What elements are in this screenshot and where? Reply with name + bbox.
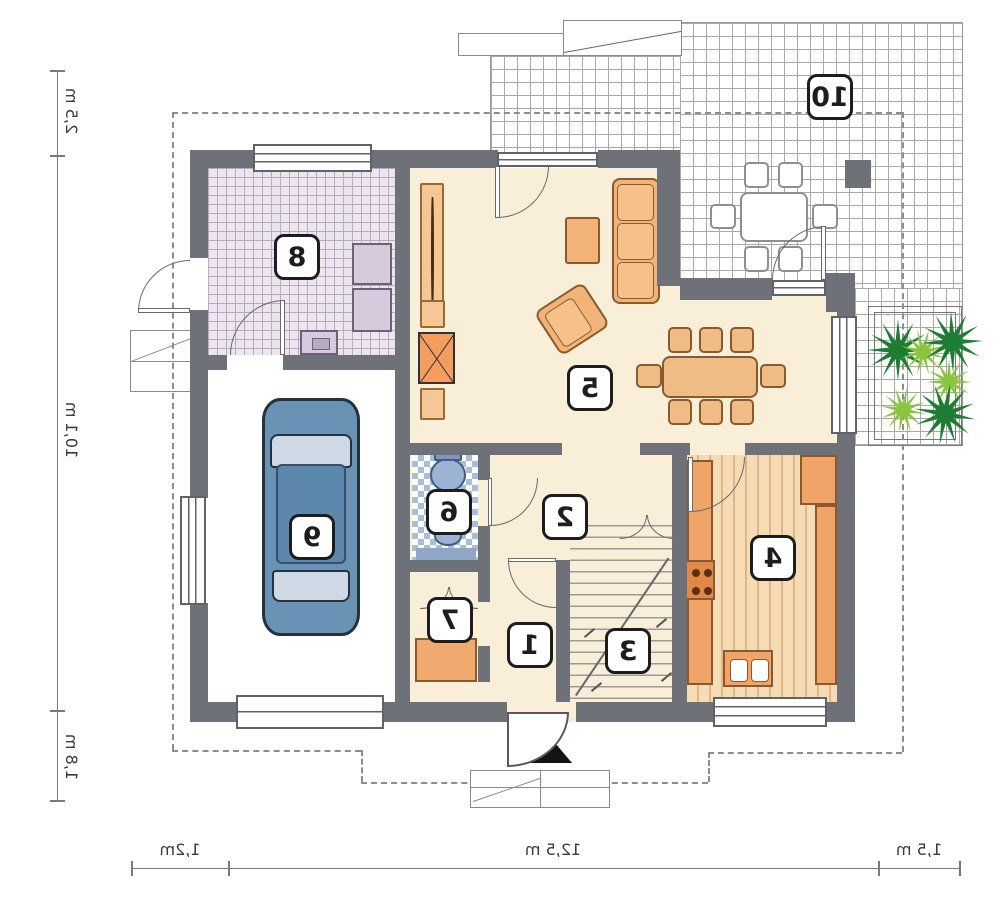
dining-chair	[730, 327, 754, 353]
car-windshield	[270, 434, 352, 468]
terrace-door	[772, 280, 826, 296]
roof-outline-dashed	[172, 750, 361, 752]
room-label: 1	[507, 622, 553, 668]
dimension-tick	[131, 861, 133, 876]
utility-sink-basin	[312, 338, 330, 350]
step-divider	[131, 361, 191, 362]
sofa	[612, 178, 660, 304]
outdoor-chair	[744, 162, 769, 188]
dining-chair	[730, 399, 754, 425]
wall-segment	[283, 355, 410, 370]
dining-chair	[668, 399, 692, 425]
sofa-cushion	[617, 184, 654, 221]
washing-machine	[352, 243, 392, 285]
dimension-tick	[228, 861, 230, 876]
wardrobe-block	[415, 638, 477, 682]
garage-window	[180, 496, 206, 605]
side-steps	[130, 330, 192, 392]
kitchen-counter-right	[815, 505, 837, 685]
door-leaf	[138, 308, 190, 313]
cabinet-decor	[431, 197, 434, 305]
wall-segment	[672, 455, 687, 702]
wall-segment	[395, 168, 410, 368]
dining-chair	[636, 364, 662, 388]
toilet	[430, 458, 466, 492]
stove-hob	[685, 560, 715, 600]
wall-segment	[576, 702, 715, 722]
wall-segment	[556, 560, 570, 702]
wall-segment	[410, 560, 490, 572]
side-cabinet	[420, 300, 445, 328]
room-label: 2	[542, 494, 588, 540]
utility-sink	[300, 330, 338, 355]
sofa-cushion	[617, 262, 654, 299]
car-rear-window	[272, 570, 350, 602]
step-diagonal	[131, 337, 193, 362]
window	[253, 144, 372, 172]
door-leaf	[488, 478, 492, 526]
sink-basin	[730, 659, 748, 682]
room-label: 3	[605, 628, 651, 674]
room-label: 10	[807, 74, 853, 120]
dryer	[352, 288, 392, 332]
coffee-table	[565, 217, 600, 264]
dimension-label: 12,5 m	[518, 840, 588, 859]
dining-chair	[668, 327, 692, 353]
dimension-tick	[50, 710, 65, 712]
door-leaf	[821, 226, 826, 280]
dimension-label: 1,8 m	[63, 729, 81, 785]
wall-segment	[826, 273, 855, 312]
garage-door	[236, 695, 384, 729]
fireplace	[418, 332, 455, 384]
terrace-tiles-strip	[490, 55, 681, 153]
wall-segment	[837, 432, 855, 722]
dimension-tick	[959, 861, 961, 876]
dining-chair	[760, 364, 786, 388]
terrace-pillar	[845, 160, 871, 188]
room-label: 8	[274, 234, 320, 280]
door-leaf	[280, 300, 285, 355]
dining-table	[662, 356, 758, 398]
sink-basin	[751, 659, 769, 682]
step-diagonal	[473, 778, 541, 802]
roof-outline-dashed	[361, 750, 363, 782]
outdoor-chair	[778, 162, 803, 188]
dining-chair	[699, 399, 723, 425]
door-leaf	[508, 558, 556, 562]
kitchen-window	[713, 697, 827, 727]
step-divider	[471, 787, 609, 788]
dimension-line-bottom	[131, 868, 960, 869]
kitchen-counter-corner	[800, 455, 837, 505]
dimension-line-left	[57, 70, 58, 800]
wall-segment	[478, 646, 490, 682]
outdoor-chair	[744, 246, 769, 272]
roof-outline-dashed	[708, 752, 902, 754]
wall-segment	[190, 150, 208, 258]
wall-segment	[380, 702, 507, 722]
room-label: 9	[289, 514, 335, 560]
wall-segment	[640, 443, 690, 455]
door-leaf	[688, 457, 693, 512]
dimension-label: 2,5 m	[63, 83, 81, 139]
dining-window	[831, 316, 857, 434]
armchair-seat	[543, 297, 593, 349]
wall-segment	[680, 278, 772, 300]
wall-segment	[205, 355, 227, 370]
roof-outline-dashed	[172, 112, 174, 750]
dimension-tick	[50, 155, 65, 157]
room-label: 4	[750, 535, 796, 581]
dimension-label: 10,1 m	[63, 398, 81, 462]
tv-cabinet	[420, 183, 444, 317]
wall-segment	[492, 443, 562, 455]
sofa-cushion	[617, 223, 654, 260]
dimension-tick	[878, 861, 880, 876]
wall-segment	[598, 150, 680, 168]
terrace-glass-door	[497, 152, 598, 167]
terrace-steps	[563, 20, 682, 56]
room-label: 5	[567, 365, 613, 411]
wall-segment	[395, 368, 410, 702]
outdoor-chair	[710, 204, 736, 229]
wall-segment	[190, 310, 208, 498]
roof-outline-dashed	[172, 112, 902, 114]
door-leaf	[495, 166, 500, 218]
dimension-label: 1,5 m	[884, 840, 954, 859]
wall-segment	[657, 168, 680, 286]
entrance-steps	[470, 770, 610, 808]
roof-outline-dashed	[708, 752, 710, 782]
dimension-label: 1,2m	[150, 840, 210, 859]
wall-segment	[410, 150, 498, 168]
wall-segment	[190, 702, 240, 722]
wall-segment	[478, 572, 490, 602]
wall-segment	[745, 443, 837, 455]
dining-chair	[699, 327, 723, 353]
dimension-tick	[50, 70, 65, 72]
room-label: 6	[426, 489, 472, 535]
kitchen-sink-unit	[723, 650, 773, 687]
door-swing-arc	[138, 260, 190, 312]
wall-segment	[478, 443, 490, 480]
side-cabinet	[420, 388, 445, 420]
dimension-tick	[50, 800, 65, 802]
floor-plan-canvas: 1 2 3 4 5 6 7 8 9 10 2,5 m 10,1 m 1,8 m …	[0, 0, 1000, 902]
room-label: 7	[427, 597, 473, 643]
